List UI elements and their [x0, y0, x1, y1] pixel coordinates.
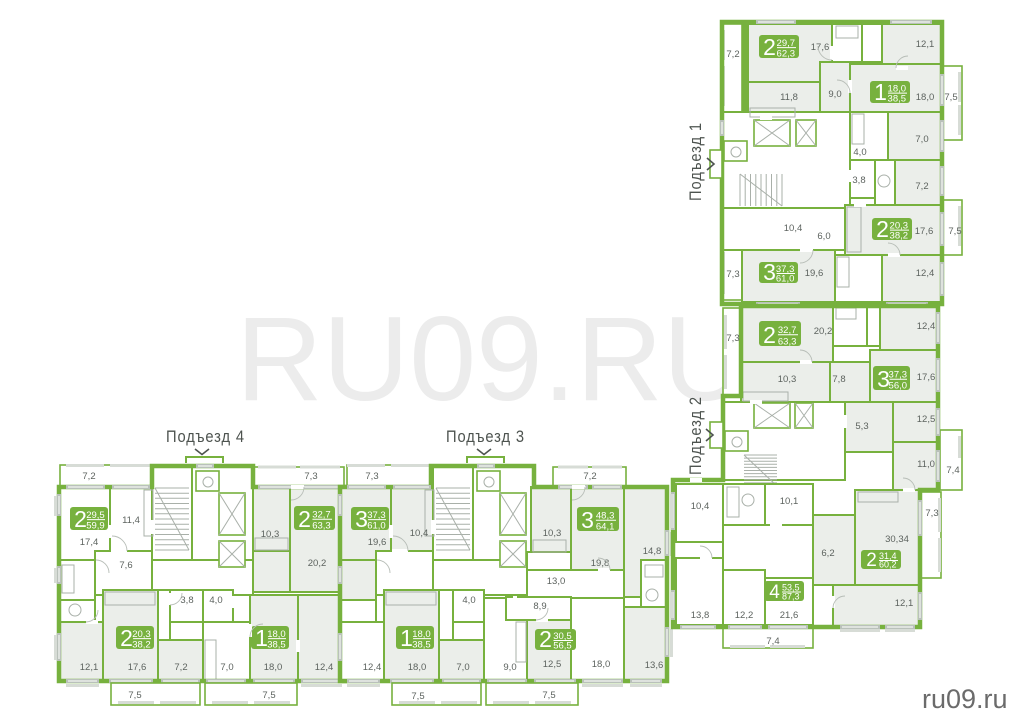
svg-text:7,5: 7,5	[948, 226, 961, 237]
svg-text:61,0: 61,0	[367, 521, 386, 532]
svg-text:38,5: 38,5	[888, 94, 907, 105]
svg-text:2: 2	[74, 506, 87, 532]
svg-text:7,0: 7,0	[456, 662, 469, 673]
svg-text:11,4: 11,4	[122, 515, 140, 526]
svg-text:7,2: 7,2	[82, 471, 95, 482]
svg-text:ru09.ru: ru09.ru	[922, 684, 1008, 714]
svg-text:10,4: 10,4	[784, 223, 803, 234]
svg-text:20,2: 20,2	[308, 558, 327, 569]
svg-text:60,2: 60,2	[879, 560, 897, 570]
svg-text:7,2: 7,2	[583, 471, 596, 482]
svg-text:38,5: 38,5	[267, 640, 286, 651]
svg-text:2: 2	[763, 34, 776, 60]
svg-text:17,6: 17,6	[811, 42, 830, 53]
svg-text:48,3: 48,3	[596, 510, 615, 521]
svg-text:2: 2	[876, 216, 889, 242]
svg-text:19,6: 19,6	[368, 537, 387, 548]
svg-text:10,3: 10,3	[261, 529, 280, 540]
svg-text:7,4: 7,4	[946, 465, 959, 476]
svg-text:4: 4	[769, 582, 780, 603]
svg-text:Подъезд 2: Подъезд 2	[687, 396, 705, 475]
svg-text:Подъезд 1: Подъезд 1	[687, 122, 705, 201]
svg-text:21,6: 21,6	[780, 610, 799, 621]
svg-text:7,8: 7,8	[832, 374, 845, 385]
svg-text:10,3: 10,3	[543, 528, 562, 539]
svg-text:63,3: 63,3	[778, 337, 797, 348]
svg-text:18,0: 18,0	[592, 659, 611, 670]
svg-text:12,1: 12,1	[80, 662, 99, 673]
svg-text:12,4: 12,4	[917, 321, 936, 332]
svg-text:61,0: 61,0	[776, 274, 795, 285]
svg-text:30,34: 30,34	[885, 534, 909, 545]
svg-text:17,4: 17,4	[80, 537, 99, 548]
svg-text:2: 2	[298, 506, 311, 532]
svg-text:3: 3	[355, 506, 368, 532]
svg-text:56,5: 56,5	[553, 641, 572, 652]
svg-text:11,0: 11,0	[917, 459, 935, 470]
svg-text:18,0: 18,0	[264, 662, 283, 673]
svg-text:3,8: 3,8	[180, 595, 193, 606]
svg-text:10,4: 10,4	[410, 528, 429, 539]
svg-text:7,3: 7,3	[726, 269, 739, 280]
svg-text:1: 1	[874, 79, 887, 105]
svg-text:7,5: 7,5	[542, 690, 555, 701]
svg-text:7,5: 7,5	[262, 690, 275, 701]
svg-text:7,5: 7,5	[411, 691, 424, 702]
svg-text:2: 2	[866, 550, 877, 571]
svg-text:7,0: 7,0	[915, 134, 928, 145]
svg-text:8,9: 8,9	[533, 601, 546, 612]
svg-text:7,3: 7,3	[365, 471, 378, 482]
svg-text:20,2: 20,2	[814, 326, 833, 337]
svg-text:Подъезд 3: Подъезд 3	[446, 428, 525, 446]
svg-text:10,1: 10,1	[780, 496, 799, 507]
svg-text:7,2: 7,2	[726, 49, 739, 60]
svg-text:12,1: 12,1	[895, 598, 914, 609]
svg-text:4,0: 4,0	[853, 147, 866, 158]
svg-text:38,2: 38,2	[132, 640, 151, 651]
svg-text:5,3: 5,3	[855, 421, 868, 432]
svg-text:6,0: 6,0	[817, 231, 830, 242]
svg-text:12,4: 12,4	[315, 662, 334, 673]
svg-text:12,5: 12,5	[917, 414, 936, 425]
svg-text:56,0: 56,0	[889, 381, 908, 392]
svg-text:32,7: 32,7	[312, 509, 331, 520]
svg-text:1: 1	[255, 625, 268, 651]
svg-text:64,1: 64,1	[596, 522, 615, 533]
svg-text:7,4: 7,4	[766, 636, 779, 647]
svg-text:7,3: 7,3	[925, 508, 938, 519]
svg-text:17,6: 17,6	[128, 662, 147, 673]
svg-text:10,4: 10,4	[691, 501, 710, 512]
svg-text:7,6: 7,6	[119, 560, 132, 571]
svg-text:7,3: 7,3	[726, 333, 739, 344]
svg-text:3: 3	[581, 507, 594, 533]
svg-text:3: 3	[763, 259, 776, 285]
svg-text:12,2: 12,2	[735, 610, 754, 621]
svg-text:62,3: 62,3	[777, 49, 796, 60]
svg-text:7,5: 7,5	[944, 92, 957, 103]
svg-text:38,2: 38,2	[890, 231, 909, 242]
svg-text:7,0: 7,0	[220, 662, 233, 673]
svg-text:7,3: 7,3	[304, 471, 317, 482]
svg-text:18,0: 18,0	[916, 92, 935, 103]
svg-text:9,0: 9,0	[503, 662, 516, 673]
svg-text:7,5: 7,5	[128, 690, 141, 701]
svg-text:12,1: 12,1	[916, 39, 935, 50]
svg-text:2: 2	[763, 322, 776, 348]
svg-text:10,3: 10,3	[778, 374, 797, 385]
svg-text:9,0: 9,0	[828, 89, 841, 100]
svg-text:4,0: 4,0	[209, 595, 222, 606]
svg-text:12,4: 12,4	[916, 268, 935, 279]
svg-text:87,3: 87,3	[782, 592, 800, 602]
svg-text:Подъезд 4: Подъезд 4	[166, 428, 245, 446]
svg-text:38,5: 38,5	[412, 640, 431, 651]
svg-text:4,0: 4,0	[462, 595, 475, 606]
svg-text:19,8: 19,8	[591, 558, 610, 569]
svg-text:RU09.RU: RU09.RU	[236, 292, 749, 426]
svg-text:3,8: 3,8	[852, 175, 865, 186]
svg-text:7,2: 7,2	[915, 181, 928, 192]
svg-text:13,6: 13,6	[645, 660, 664, 671]
svg-text:17,6: 17,6	[915, 226, 934, 237]
svg-text:7,2: 7,2	[174, 662, 187, 673]
svg-text:2: 2	[539, 626, 552, 652]
svg-text:2: 2	[120, 625, 133, 651]
svg-text:63,3: 63,3	[312, 521, 331, 532]
svg-text:17,6: 17,6	[917, 372, 936, 383]
svg-text:14,8: 14,8	[643, 546, 662, 557]
svg-text:37,3: 37,3	[889, 369, 908, 380]
svg-text:11,8: 11,8	[780, 92, 798, 103]
svg-text:32,7: 32,7	[778, 325, 797, 336]
svg-text:12,5: 12,5	[543, 659, 562, 670]
svg-text:13,8: 13,8	[691, 610, 710, 621]
svg-text:1: 1	[400, 625, 413, 651]
svg-text:19,6: 19,6	[805, 268, 824, 279]
svg-text:13,0: 13,0	[547, 576, 566, 587]
svg-text:6,2: 6,2	[821, 548, 834, 559]
svg-text:12,4: 12,4	[363, 662, 382, 673]
svg-text:18,0: 18,0	[408, 662, 427, 673]
svg-text:59,9: 59,9	[86, 521, 105, 532]
